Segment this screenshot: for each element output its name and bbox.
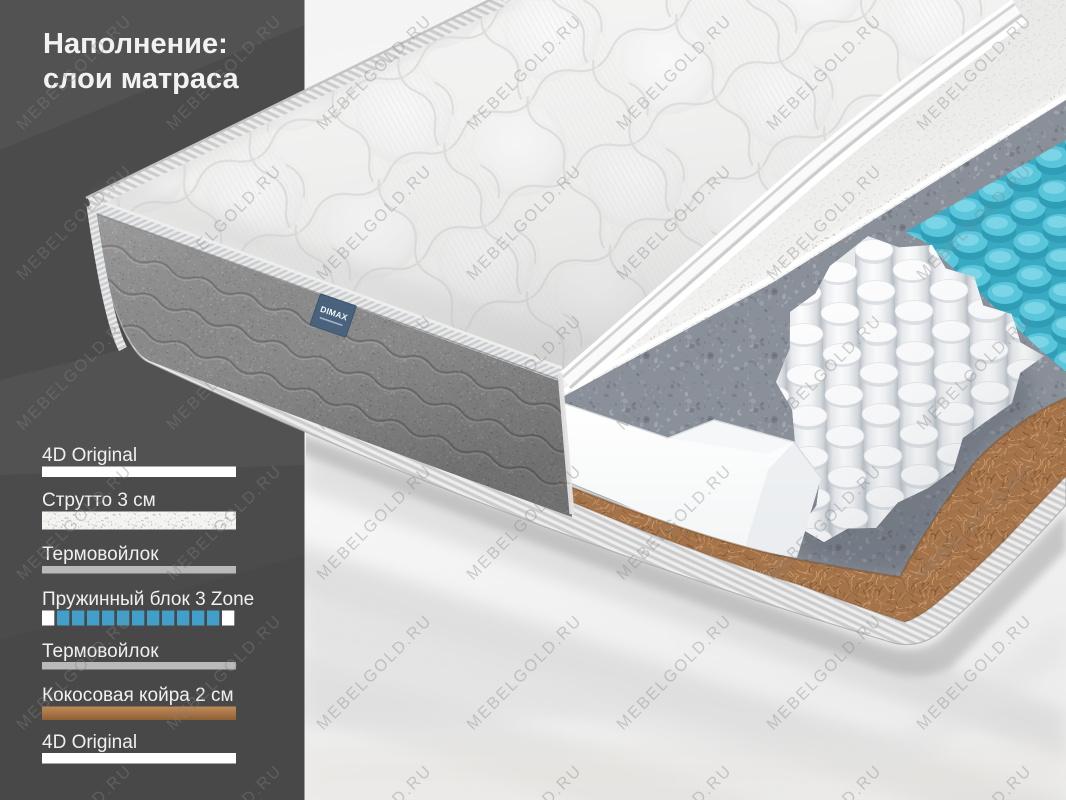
svg-text:4D Original: 4D Original — [42, 732, 137, 753]
svg-text:Пружинный блок 3 Zone: Пружинный блок 3 Zone — [42, 589, 254, 610]
svg-text:Наполнение:: Наполнение: — [43, 28, 228, 60]
